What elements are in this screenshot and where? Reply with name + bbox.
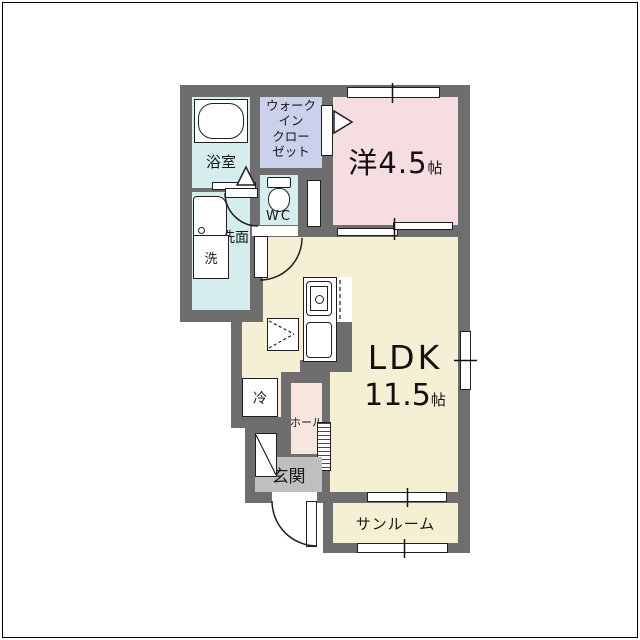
ldk-door-leaf [254,236,268,278]
ldk-label-block: LDK 11.5帖 [352,340,458,416]
kitchen-counter-pass [337,277,352,322]
stove-icon [306,322,332,358]
exterior-notch [231,428,245,503]
sunroom-label: サンルーム [356,513,436,534]
window-sunroom-bottom [357,543,448,553]
front-door-leaf [306,501,317,547]
faucet-icon [315,295,324,304]
room-bathroom: 浴室 [192,97,250,188]
western-room-unit: 帖 [428,157,443,178]
walk-in-closet-label: ウォーク イン クロー ゼット [260,98,322,159]
toilet-tank-icon [267,177,291,188]
window-sunroom-top [367,492,447,502]
window-western-top [347,87,440,98]
wc-label: WC [260,209,298,224]
washer-box: 洗 [193,235,229,279]
sliding-door-western-left [337,228,398,236]
fridge-label: 冷 [243,379,277,416]
room-wc: WC [260,175,298,225]
window-ldk-right [460,331,471,390]
kitchen-unit [303,277,337,362]
room-ldk-upper [263,237,458,322]
western-room-label: 洋4.5 [348,140,427,182]
ldk-unit: 帖 [431,391,446,409]
doorway-wc-strip [307,180,321,227]
kitchen-sink-icon [306,281,332,316]
bathroom-label: 浴室 [192,151,250,172]
bathtub-inner [198,103,244,139]
sliding-door-western-right [393,222,453,230]
washroom-door-leaf [225,188,258,198]
sink-drain [198,227,205,234]
ldk-size: 11.5 [364,378,431,413]
washer-label: 洗 [194,236,228,278]
room-western: 洋4.5帖 [333,97,458,225]
bathtub-icon [194,99,248,143]
floor-plan: 浴室 洗面 洗 ウォーク イン クロー ゼット WC 洋4.5帖 LDK 11.… [0,0,640,640]
room-walk-in-closet: ウォーク イン クロー ゼット [260,97,322,168]
fridge-box: 冷 [242,378,278,417]
ldk-label: LDK [352,340,458,376]
ldk-size-line: 11.5帖 [352,380,458,416]
shoe-cabinet [255,433,277,477]
counter-box [267,318,299,351]
ldk-doorway-gap [252,226,298,236]
room-sunroom: サンルーム [333,503,458,543]
doorway-closet-strip [321,105,333,156]
